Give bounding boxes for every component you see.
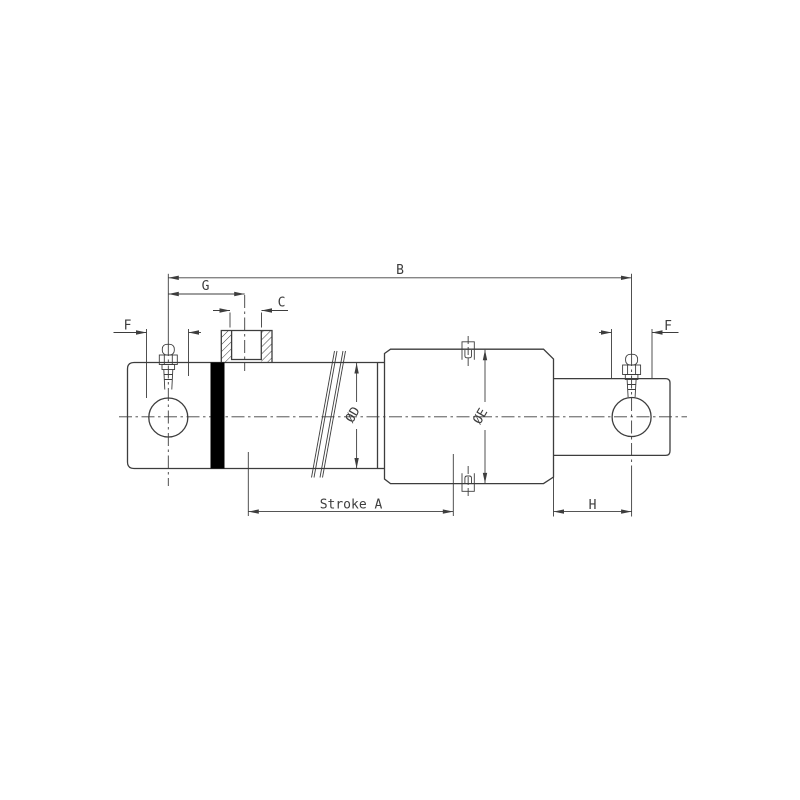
dim-label-oe: ØE bbox=[470, 406, 491, 427]
tube-outline bbox=[128, 363, 378, 469]
dim-label-f-left: F bbox=[124, 319, 132, 334]
technical-drawing: B G C F F bbox=[0, 0, 800, 800]
dim-label-od: ØD bbox=[343, 404, 364, 425]
dim-label-stroke-a: Stroke A bbox=[320, 498, 383, 513]
centerlines bbox=[119, 295, 687, 496]
dim-label-h: H bbox=[589, 498, 597, 513]
drawing-page: B G C F F bbox=[0, 0, 800, 800]
dim-f-left: F bbox=[114, 319, 202, 399]
dim-g: G bbox=[168, 279, 244, 296]
port-wall-left bbox=[221, 331, 231, 363]
dim-od: ØD bbox=[343, 363, 364, 469]
dim-h: H bbox=[554, 470, 632, 517]
dim-label-g: G bbox=[202, 279, 210, 294]
dim-f-right: F bbox=[599, 319, 679, 379]
dim-oe: ØE bbox=[470, 350, 491, 484]
port-wall-right bbox=[261, 331, 272, 363]
dim-label-c: C bbox=[278, 296, 286, 311]
port-boss bbox=[221, 331, 272, 363]
dim-c: C bbox=[213, 296, 288, 328]
dim-label-f-right: F bbox=[664, 319, 672, 334]
weld-band bbox=[211, 363, 225, 469]
dim-b: B bbox=[168, 263, 631, 353]
dim-label-b: B bbox=[396, 263, 404, 278]
break-lines bbox=[312, 351, 346, 478]
